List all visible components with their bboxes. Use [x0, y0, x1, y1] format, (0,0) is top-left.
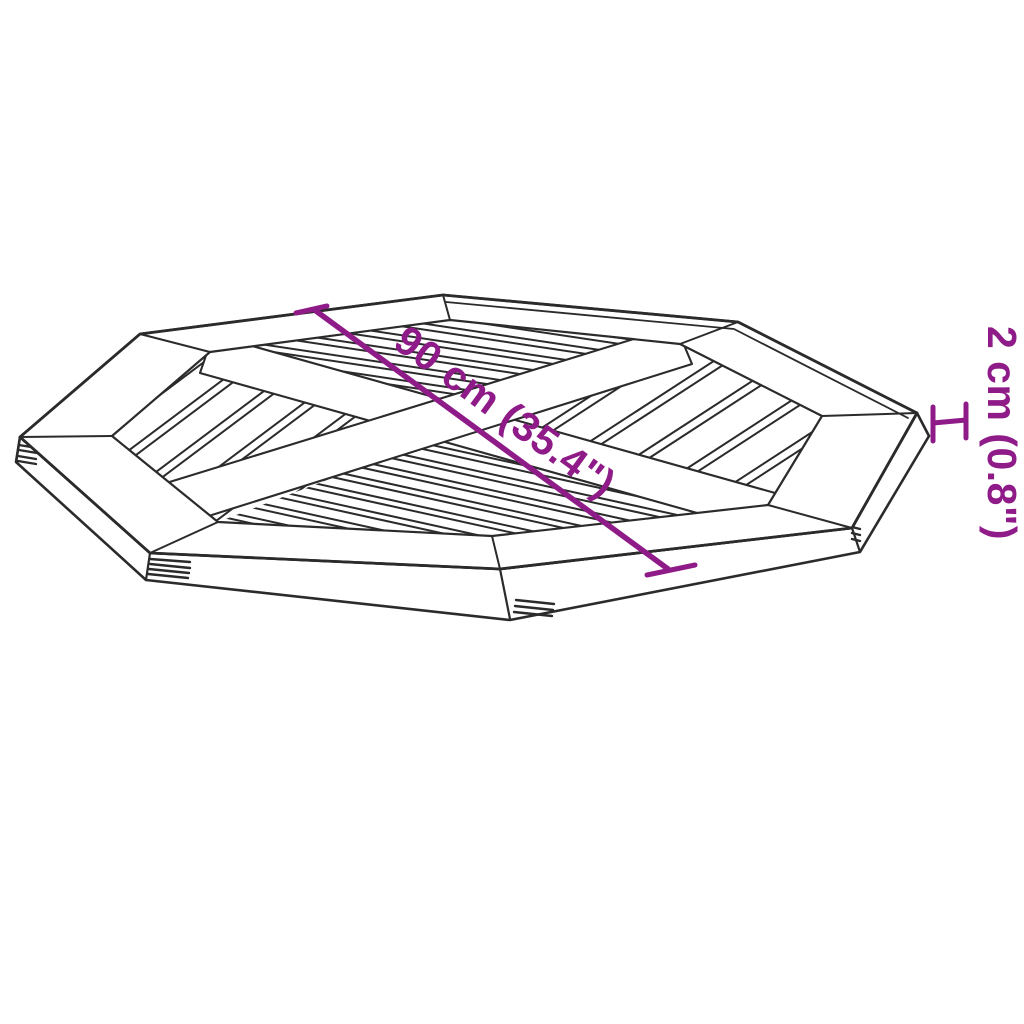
thickness-extent-icon — [933, 404, 966, 441]
product-dimension-diagram: 90 cm (35.4") 2 cm (0.8") — [0, 0, 1024, 1024]
table-top-drawing — [0, 0, 1024, 1024]
thickness-dimension-label: 2 cm (0.8") — [979, 326, 1024, 540]
product-diagram-svg: 90 cm (35.4") 2 cm (0.8") — [0, 0, 1024, 1024]
